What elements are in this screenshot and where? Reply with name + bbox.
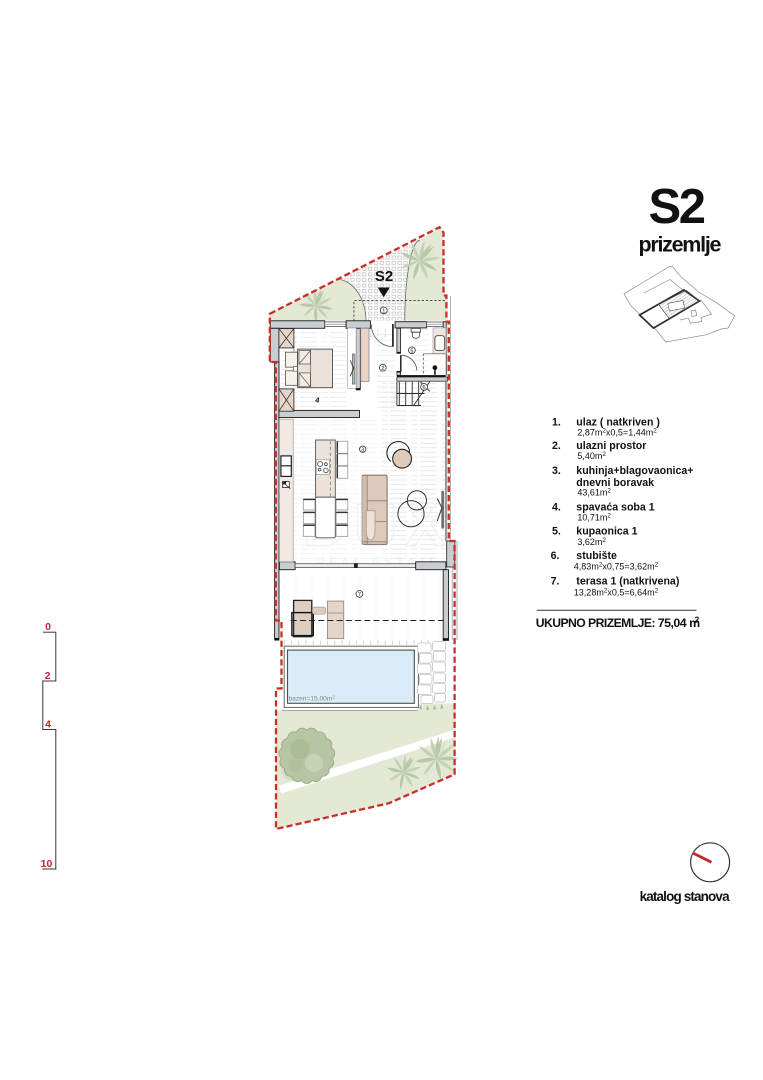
svg-text:bazen=15,00m2: bazen=15,00m2	[289, 695, 336, 703]
svg-text:2,87m2x0,5=1,44m2: 2,87m2x0,5=1,44m2	[577, 428, 657, 438]
svg-text:prizemlje: prizemlje	[639, 233, 722, 257]
svg-text:7: 7	[358, 592, 361, 598]
svg-text:10,71m2: 10,71m2	[577, 513, 611, 523]
svg-text:terasa 1 (natkrivena): terasa 1 (natkrivena)	[576, 575, 679, 587]
svg-text:4: 4	[45, 719, 51, 731]
svg-text:1.: 1.	[552, 417, 561, 429]
svg-text:6: 6	[423, 385, 426, 391]
svg-text:4,83m2x0,75=3,62m2: 4,83m2x0,75=3,62m2	[574, 562, 659, 572]
svg-text:kuhinja+blagovaonica+: kuhinja+blagovaonica+	[576, 465, 693, 477]
svg-text:2.: 2.	[552, 440, 561, 452]
svg-text:5: 5	[410, 349, 413, 355]
svg-text:kupaonica 1: kupaonica 1	[576, 526, 637, 538]
svg-text:S2: S2	[649, 180, 705, 234]
svg-text:5,40m2: 5,40m2	[577, 451, 606, 461]
svg-text:2: 2	[695, 615, 700, 625]
svg-text:3: 3	[361, 448, 364, 454]
svg-text:5.: 5.	[552, 526, 561, 538]
svg-text:10: 10	[41, 858, 53, 870]
svg-text:stubište: stubište	[576, 550, 617, 562]
svg-text:2: 2	[381, 366, 384, 372]
svg-text:katalog stanova: katalog stanova	[640, 889, 730, 904]
svg-text:4: 4	[314, 396, 320, 405]
svg-text:43,61m2: 43,61m2	[577, 488, 611, 498]
svg-text:6.: 6.	[551, 550, 560, 562]
svg-text:7.: 7.	[551, 575, 560, 587]
svg-text:UKUPNO PRIZEMLJE:: UKUPNO PRIZEMLJE:	[536, 616, 655, 630]
svg-text:3.: 3.	[552, 465, 561, 477]
svg-text:2: 2	[45, 670, 51, 682]
svg-text:13,28m2x0,5=6,64m2: 13,28m2x0,5=6,64m2	[574, 587, 659, 597]
svg-text:3,62m2: 3,62m2	[577, 537, 606, 547]
svg-text:4.: 4.	[552, 502, 561, 514]
svg-text:0: 0	[45, 621, 51, 633]
svg-text:1: 1	[382, 309, 385, 315]
svg-text:S2: S2	[375, 268, 393, 285]
